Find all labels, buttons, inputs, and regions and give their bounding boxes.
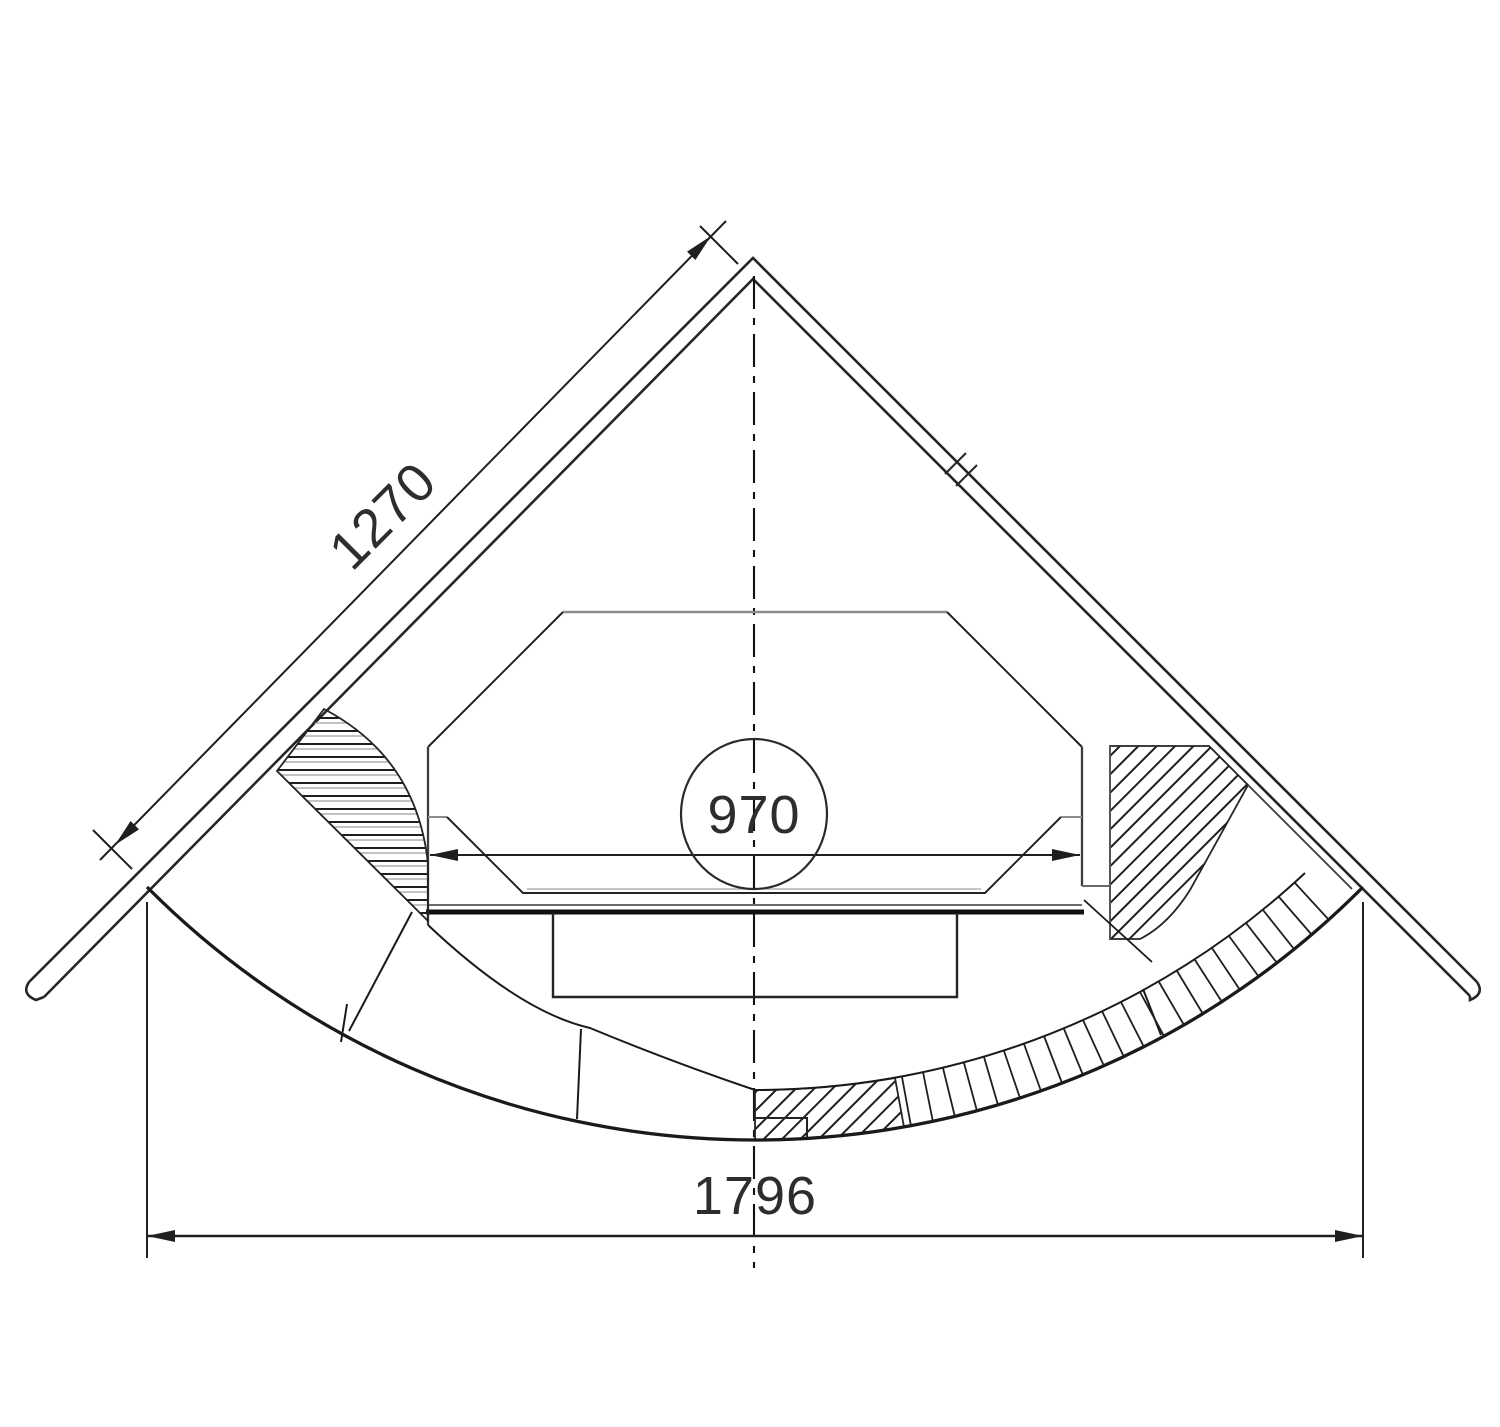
masonry-hatch-left [277, 709, 428, 921]
dimension-1270: 1270 [93, 221, 738, 869]
dim-1796-arrowhead-left [147, 1230, 175, 1242]
dim-970-arrowhead-right [1052, 849, 1080, 861]
segment-joint-right [1143, 989, 1161, 1035]
bench-top-curve-left [428, 925, 755, 1090]
dim-970-label: 970 [707, 785, 800, 845]
dimension-1796: 1796 [147, 902, 1363, 1258]
wall-right-joint-mark [945, 453, 977, 486]
technical-drawing-canvas: 1270 970 1796 [0, 0, 1500, 1427]
wall-left-end-cap [26, 982, 44, 1000]
stove-body-outline [426, 612, 1110, 925]
dim-970-arrowhead-left [430, 849, 458, 861]
dim-1270-extension-tick-top [700, 226, 738, 264]
corner-stove-plan-drawing: 1270 970 1796 [0, 0, 1500, 1427]
bench-left-chamfer [349, 912, 412, 1031]
dim-1270-label: 1270 [318, 451, 448, 581]
dim-1796-label: 1796 [693, 1166, 817, 1226]
dim-1796-arrowhead-right [1335, 1230, 1363, 1242]
dim-1270-line [100, 221, 726, 860]
wall-right-end-cap [1470, 982, 1480, 1000]
wall-furring-line-right [1248, 785, 1352, 889]
masonry-hatch-right [1110, 746, 1248, 939]
segment-joint-left [577, 1029, 581, 1119]
